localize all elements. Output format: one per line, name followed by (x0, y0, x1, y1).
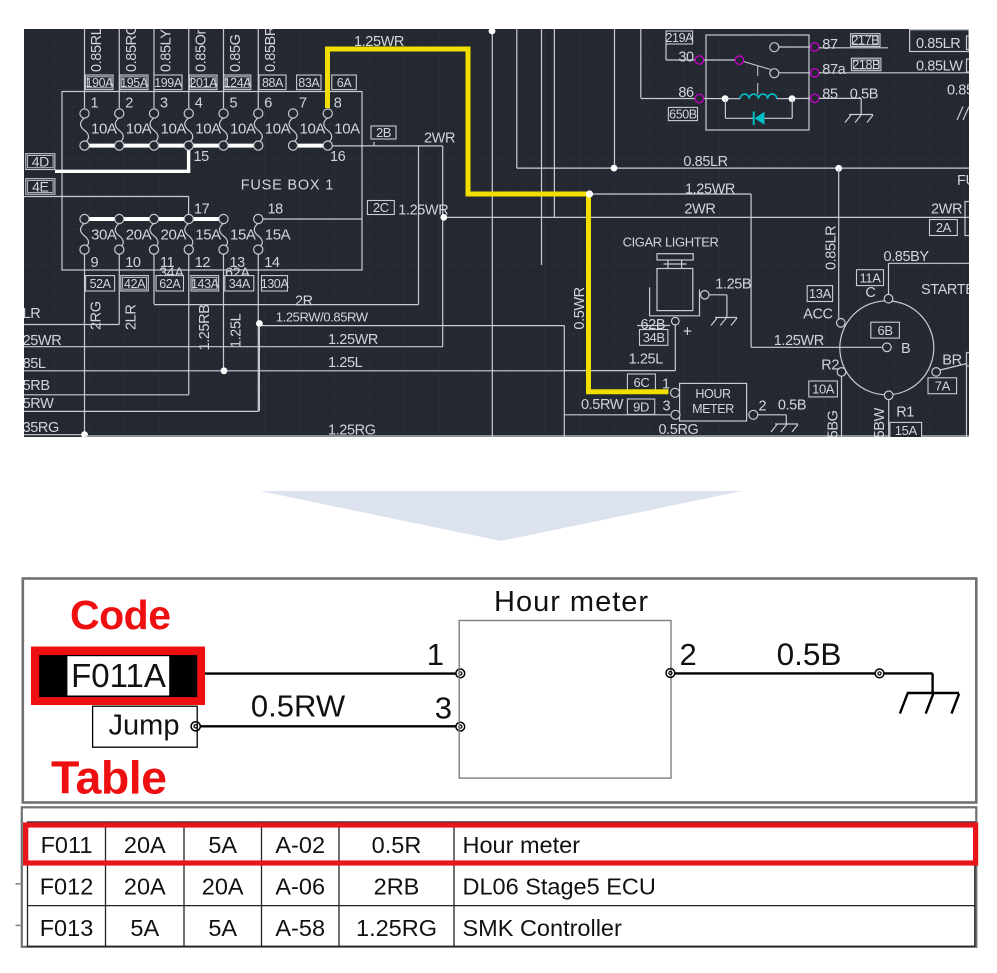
svg-text:8: 8 (334, 95, 342, 111)
svg-text:13A: 13A (809, 286, 832, 301)
svg-text:HOUR: HOUR (695, 387, 731, 401)
svg-text:1.25WR: 1.25WR (774, 333, 824, 349)
svg-text:1.25RG: 1.25RG (328, 423, 376, 439)
svg-text:DL06 Stage5 ECU: DL06 Stage5 ECU (463, 874, 656, 900)
svg-text:CIGAR LIGHTER: CIGAR LIGHTER (623, 234, 719, 249)
svg-text:1: 1 (91, 95, 99, 111)
svg-text:0.85G: 0.85G (228, 34, 244, 72)
svg-text:85L: 85L (23, 356, 46, 372)
svg-text:9: 9 (91, 255, 99, 271)
svg-text:15A: 15A (195, 226, 221, 243)
svg-text:5RB: 5RB (23, 378, 50, 394)
svg-text:STARTER: STARTER (921, 282, 985, 298)
svg-text:F013: F013 (40, 915, 94, 941)
svg-text:15A: 15A (265, 226, 291, 243)
svg-text:217B: 217B (852, 34, 880, 48)
svg-text:1.25L: 1.25L (229, 313, 245, 348)
svg-text:85BG: 85BG (825, 410, 841, 446)
svg-text:130A: 130A (261, 277, 290, 291)
svg-text:2RG: 2RG (89, 301, 105, 330)
svg-text:2RB: 2RB (374, 874, 420, 900)
svg-text:42A: 42A (124, 277, 146, 291)
svg-text:0.5RW: 0.5RW (251, 689, 346, 724)
svg-text:190A: 190A (86, 76, 115, 90)
svg-text:0.5B: 0.5B (777, 636, 842, 672)
svg-text:20A: 20A (124, 874, 166, 900)
svg-text:2LR: 2LR (124, 305, 140, 330)
svg-text:1.25WR: 1.25WR (685, 182, 735, 198)
svg-text:10: 10 (125, 255, 141, 271)
svg-text:15A: 15A (895, 423, 918, 438)
svg-text:1.25RB: 1.25RB (197, 305, 213, 351)
svg-text:0.85LR: 0.85LR (824, 226, 840, 270)
svg-text:7: 7 (299, 95, 307, 111)
svg-text:6B: 6B (878, 323, 893, 338)
svg-text:87a: 87a (822, 62, 846, 78)
svg-text:219A: 219A (666, 31, 695, 45)
svg-text:7A: 7A (935, 378, 951, 393)
svg-text:35RG: 35RG (23, 420, 59, 436)
svg-text:2: 2 (680, 637, 697, 672)
svg-text:0.85BR: 0.85BR (263, 26, 279, 72)
svg-text:SMK Controller: SMK Controller (463, 915, 622, 941)
svg-text:0.85LR: 0.85LR (916, 36, 960, 52)
svg-text:0.5RW: 0.5RW (581, 397, 624, 413)
svg-text:ACC: ACC (803, 306, 832, 322)
svg-text:FUSE: FUSE (957, 173, 995, 189)
svg-text:2WR: 2WR (424, 131, 455, 147)
svg-text:30: 30 (678, 50, 694, 66)
svg-text:0.85LW: 0.85LW (916, 59, 963, 75)
svg-text:METER: METER (692, 402, 734, 416)
svg-text:20A: 20A (202, 874, 244, 900)
svg-text:14: 14 (264, 255, 280, 271)
svg-text:0.85LR: 0.85LR (683, 154, 727, 170)
svg-text:2WR: 2WR (684, 202, 715, 218)
svg-text:88A: 88A (262, 76, 284, 90)
svg-text:Jump: Jump (109, 710, 180, 742)
svg-text:FUSE BOX 1: FUSE BOX 1 (241, 178, 334, 194)
svg-text:195A: 195A (120, 76, 149, 90)
svg-text:11A: 11A (860, 270, 882, 285)
svg-text:0.85: 0.85 (947, 83, 974, 99)
svg-text:5A: 5A (208, 915, 237, 941)
svg-text:85BW: 85BW (872, 407, 888, 446)
svg-text:10A: 10A (265, 120, 291, 137)
svg-text:5RW: 5RW (23, 396, 54, 412)
svg-text:R1: R1 (896, 405, 914, 421)
svg-text:A-02: A-02 (275, 832, 325, 858)
svg-text:20A: 20A (124, 832, 166, 858)
svg-text:34B: 34B (643, 330, 665, 345)
svg-text:143A: 143A (191, 277, 220, 291)
svg-text:12: 12 (195, 255, 211, 271)
svg-text:10A: 10A (812, 382, 835, 397)
svg-text:+: + (683, 324, 692, 341)
svg-text:20A: 20A (126, 226, 152, 243)
svg-text:0.5RG: 0.5RG (659, 422, 699, 438)
svg-text:2A: 2A (936, 220, 952, 235)
svg-text:0.85LY: 0.85LY (159, 29, 175, 72)
svg-text:30A: 30A (91, 226, 117, 243)
svg-text:0.5WR: 0.5WR (572, 287, 588, 329)
svg-text:6A: 6A (337, 76, 353, 90)
svg-text:199A: 199A (154, 76, 183, 90)
svg-text:3: 3 (663, 399, 671, 415)
svg-text:F011A: F011A (71, 657, 166, 694)
svg-text:C: C (865, 285, 875, 301)
svg-text:15: 15 (194, 149, 210, 165)
svg-text:1.25WR: 1.25WR (328, 332, 378, 348)
svg-text:62A: 62A (159, 277, 181, 291)
svg-text:3: 3 (435, 691, 452, 726)
svg-text:85: 85 (822, 87, 838, 103)
svg-text:4E: 4E (32, 178, 48, 194)
svg-text:4: 4 (195, 95, 203, 111)
svg-text:10A: 10A (126, 120, 152, 137)
svg-text:10A: 10A (195, 120, 221, 137)
svg-text:A-06: A-06 (275, 874, 325, 900)
svg-text:9D: 9D (633, 399, 649, 414)
svg-text:Hour meter: Hour meter (463, 832, 581, 858)
svg-text:F011: F011 (41, 832, 93, 858)
svg-text:LR: LR (23, 306, 41, 322)
svg-text:0.5B: 0.5B (778, 397, 806, 413)
svg-text:6: 6 (264, 95, 272, 111)
svg-text:0.85RG: 0.85RG (124, 24, 140, 72)
svg-text:0.85BY: 0.85BY (884, 249, 930, 265)
svg-text:2B: 2B (376, 125, 391, 140)
svg-text:1.25L: 1.25L (328, 355, 363, 371)
svg-text:10A: 10A (91, 120, 117, 137)
svg-text:1.25RG: 1.25RG (356, 915, 437, 941)
svg-text:10A: 10A (300, 120, 326, 137)
svg-text:16: 16 (330, 149, 346, 165)
svg-text:18: 18 (268, 202, 284, 218)
svg-text:2R: 2R (295, 294, 313, 310)
svg-text:3: 3 (160, 95, 168, 111)
svg-text:0.85Or: 0.85Or (193, 30, 209, 72)
svg-text:2C: 2C (373, 200, 389, 215)
svg-text:4D: 4D (32, 154, 49, 170)
svg-text:2: 2 (759, 399, 767, 415)
svg-text:6C: 6C (633, 375, 649, 390)
svg-text:650B: 650B (669, 108, 697, 122)
svg-text:2: 2 (125, 95, 133, 111)
svg-text:10A: 10A (334, 120, 360, 137)
svg-text:17: 17 (194, 202, 210, 218)
svg-text:B: B (901, 341, 910, 357)
svg-text:20A: 20A (161, 226, 187, 243)
svg-text:Table: Table (51, 752, 167, 804)
svg-text:1.25B: 1.25B (715, 276, 751, 292)
svg-text:A-58: A-58 (275, 915, 325, 941)
svg-text:87: 87 (822, 37, 838, 53)
svg-text:Hour meter: Hour meter (494, 586, 649, 618)
svg-text:218B: 218B (852, 58, 880, 72)
svg-text:83A: 83A (298, 76, 320, 90)
svg-text:1.25L: 1.25L (629, 352, 664, 368)
svg-text:124A: 124A (224, 76, 253, 90)
svg-text:R2: R2 (821, 358, 839, 374)
svg-text:1.25RW/0.85RW: 1.25RW/0.85RW (276, 310, 369, 325)
svg-text:201A: 201A (190, 76, 219, 90)
svg-text:0.85RL: 0.85RL (89, 27, 105, 72)
svg-text:Code: Code (70, 592, 171, 638)
svg-text:5: 5 (230, 95, 238, 111)
svg-text:2WR: 2WR (931, 202, 962, 218)
svg-text:5A: 5A (208, 832, 237, 858)
svg-text:15A: 15A (230, 226, 256, 243)
svg-text:0.5R: 0.5R (372, 832, 422, 858)
svg-text:52A: 52A (90, 277, 112, 291)
svg-text:0.5B: 0.5B (850, 87, 878, 103)
svg-text:34A: 34A (229, 277, 251, 291)
svg-text:10A: 10A (161, 120, 187, 137)
svg-text:F012: F012 (40, 874, 94, 900)
svg-text:5A: 5A (130, 915, 159, 941)
svg-text:1.25WR: 1.25WR (354, 34, 404, 50)
svg-text:10A: 10A (230, 120, 256, 137)
svg-text:1: 1 (427, 637, 444, 672)
